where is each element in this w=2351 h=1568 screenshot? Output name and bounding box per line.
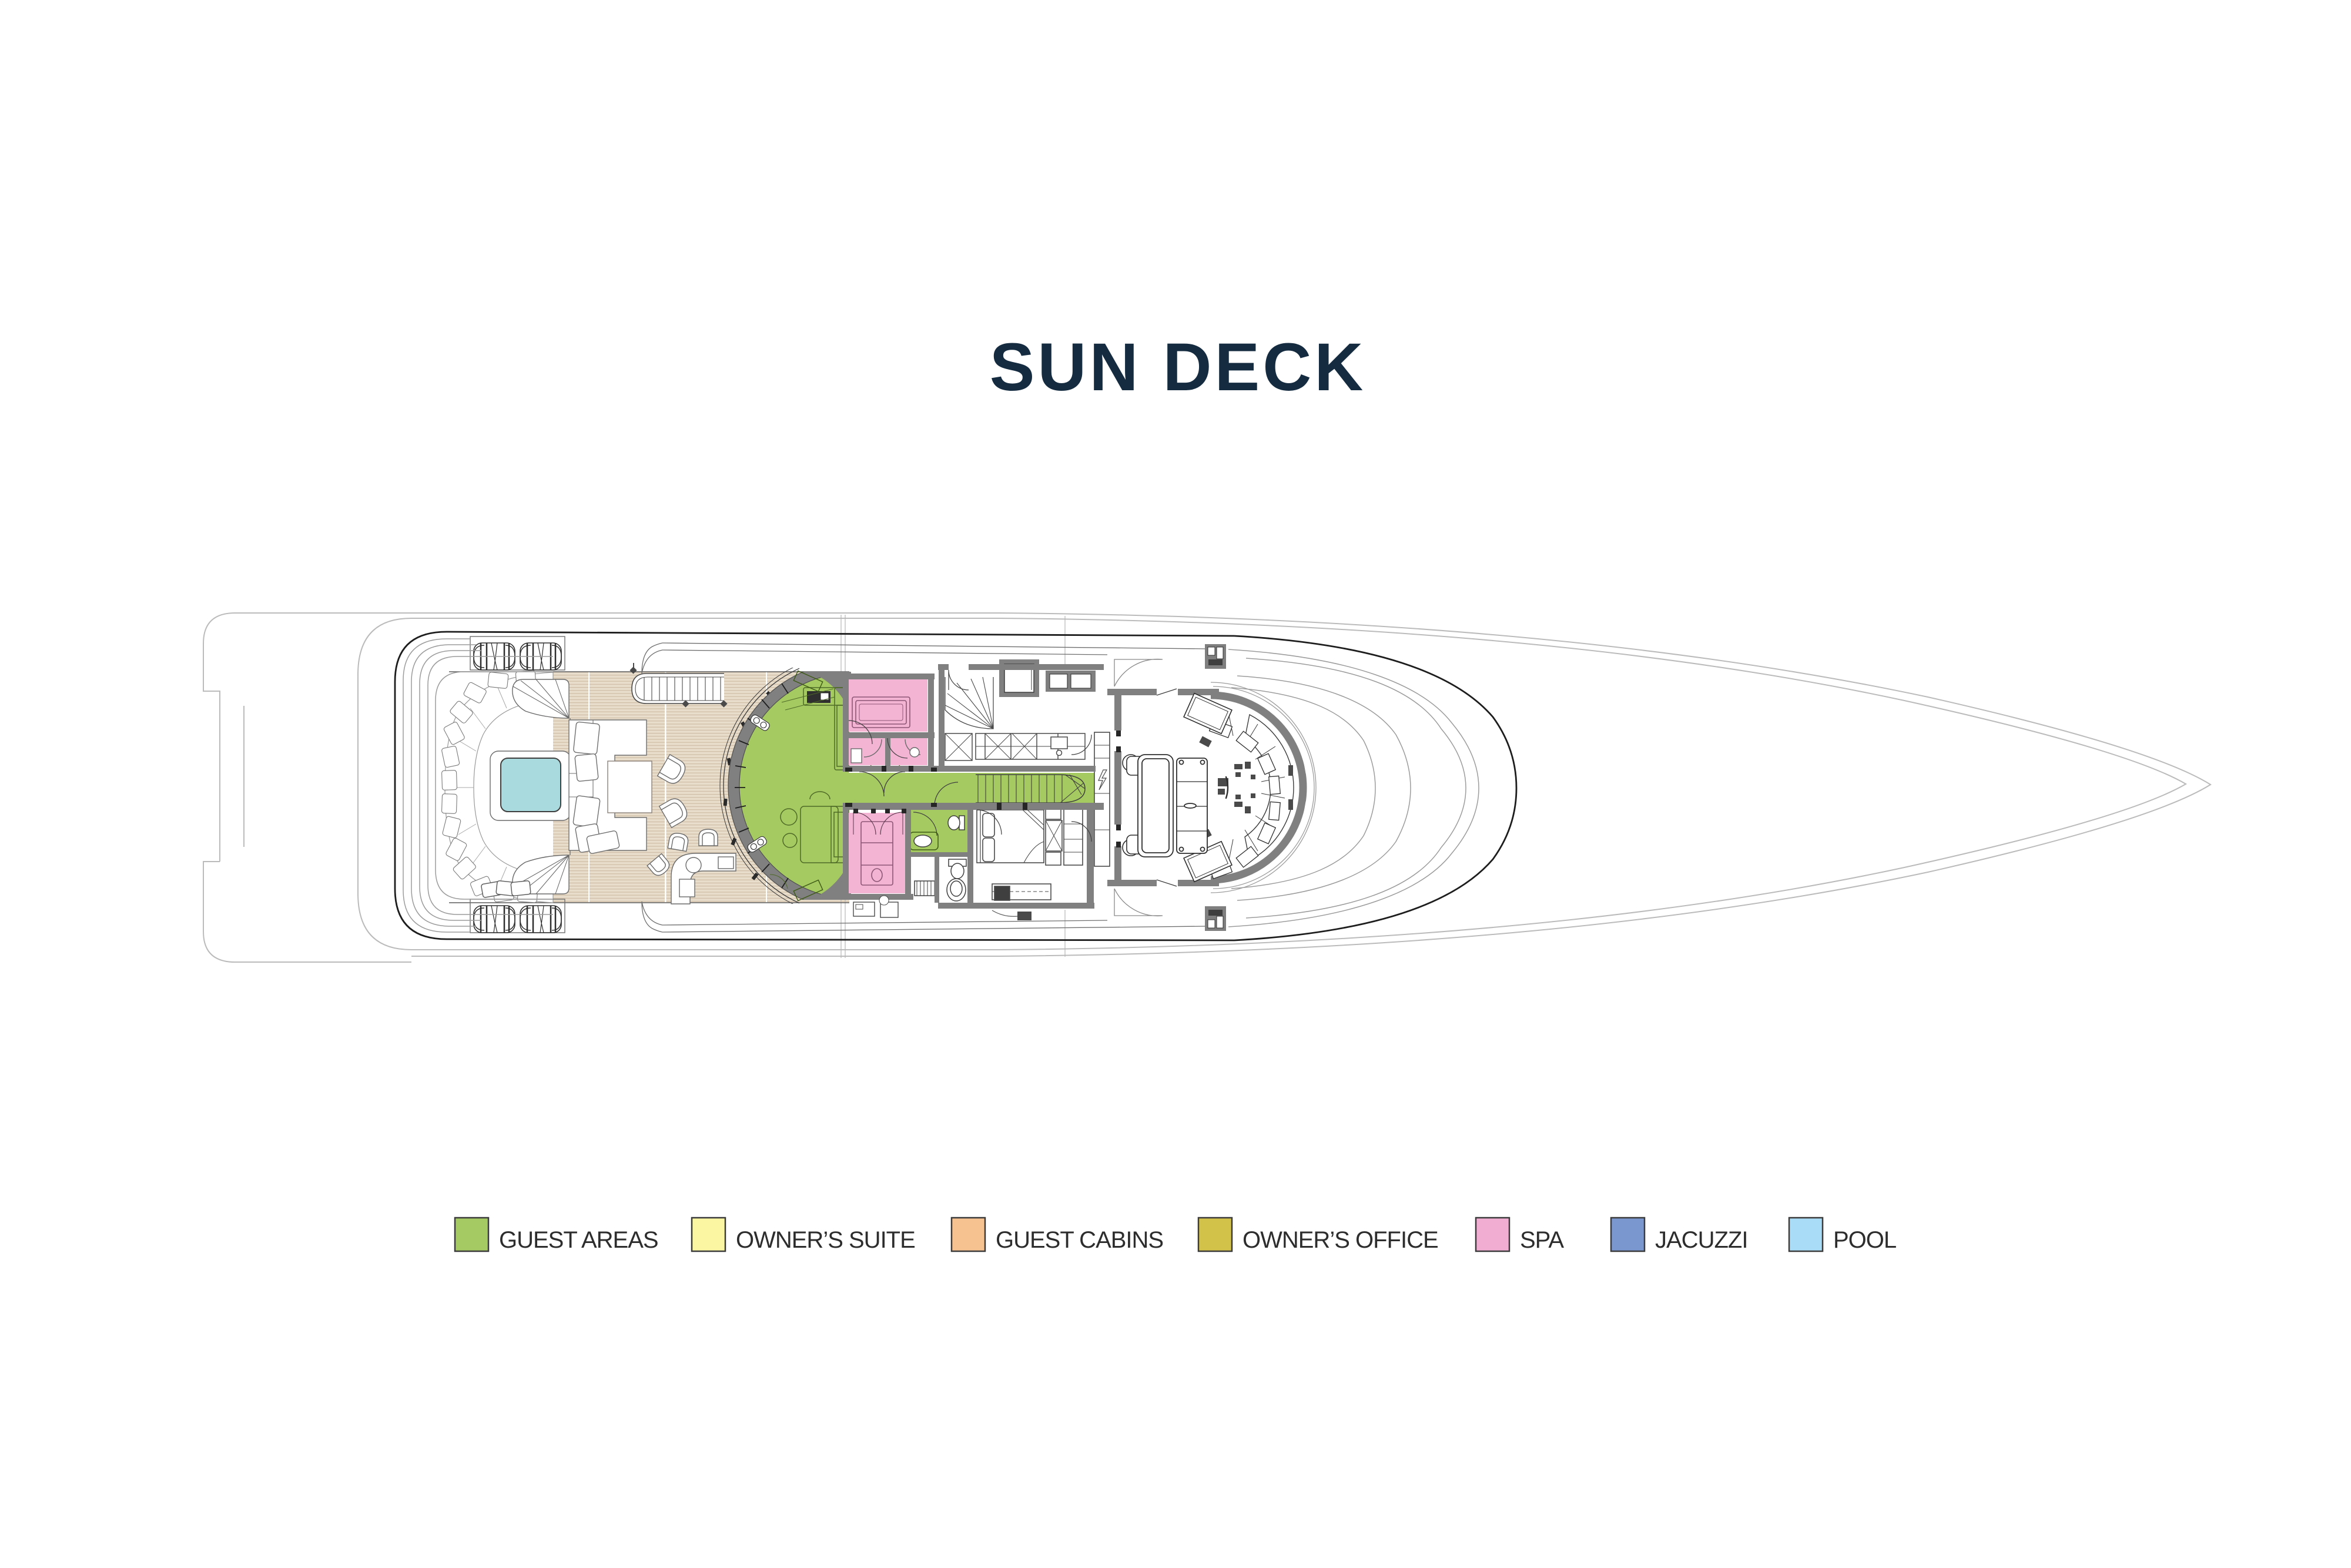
- svg-text:POOL: POOL: [1833, 1227, 1896, 1253]
- svg-text:OWNER’S SUITE: OWNER’S SUITE: [736, 1227, 915, 1253]
- svg-text:GUEST CABINS: GUEST CABINS: [996, 1227, 1163, 1253]
- svg-text:GUEST AREAS: GUEST AREAS: [499, 1227, 658, 1253]
- svg-text:SPA: SPA: [1520, 1227, 1564, 1253]
- svg-text:JACUZZI: JACUZZI: [1655, 1227, 1747, 1253]
- svg-text:SUN DECK: SUN DECK: [990, 330, 1367, 405]
- svg-text:OWNER’S OFFICE: OWNER’S OFFICE: [1243, 1227, 1438, 1253]
